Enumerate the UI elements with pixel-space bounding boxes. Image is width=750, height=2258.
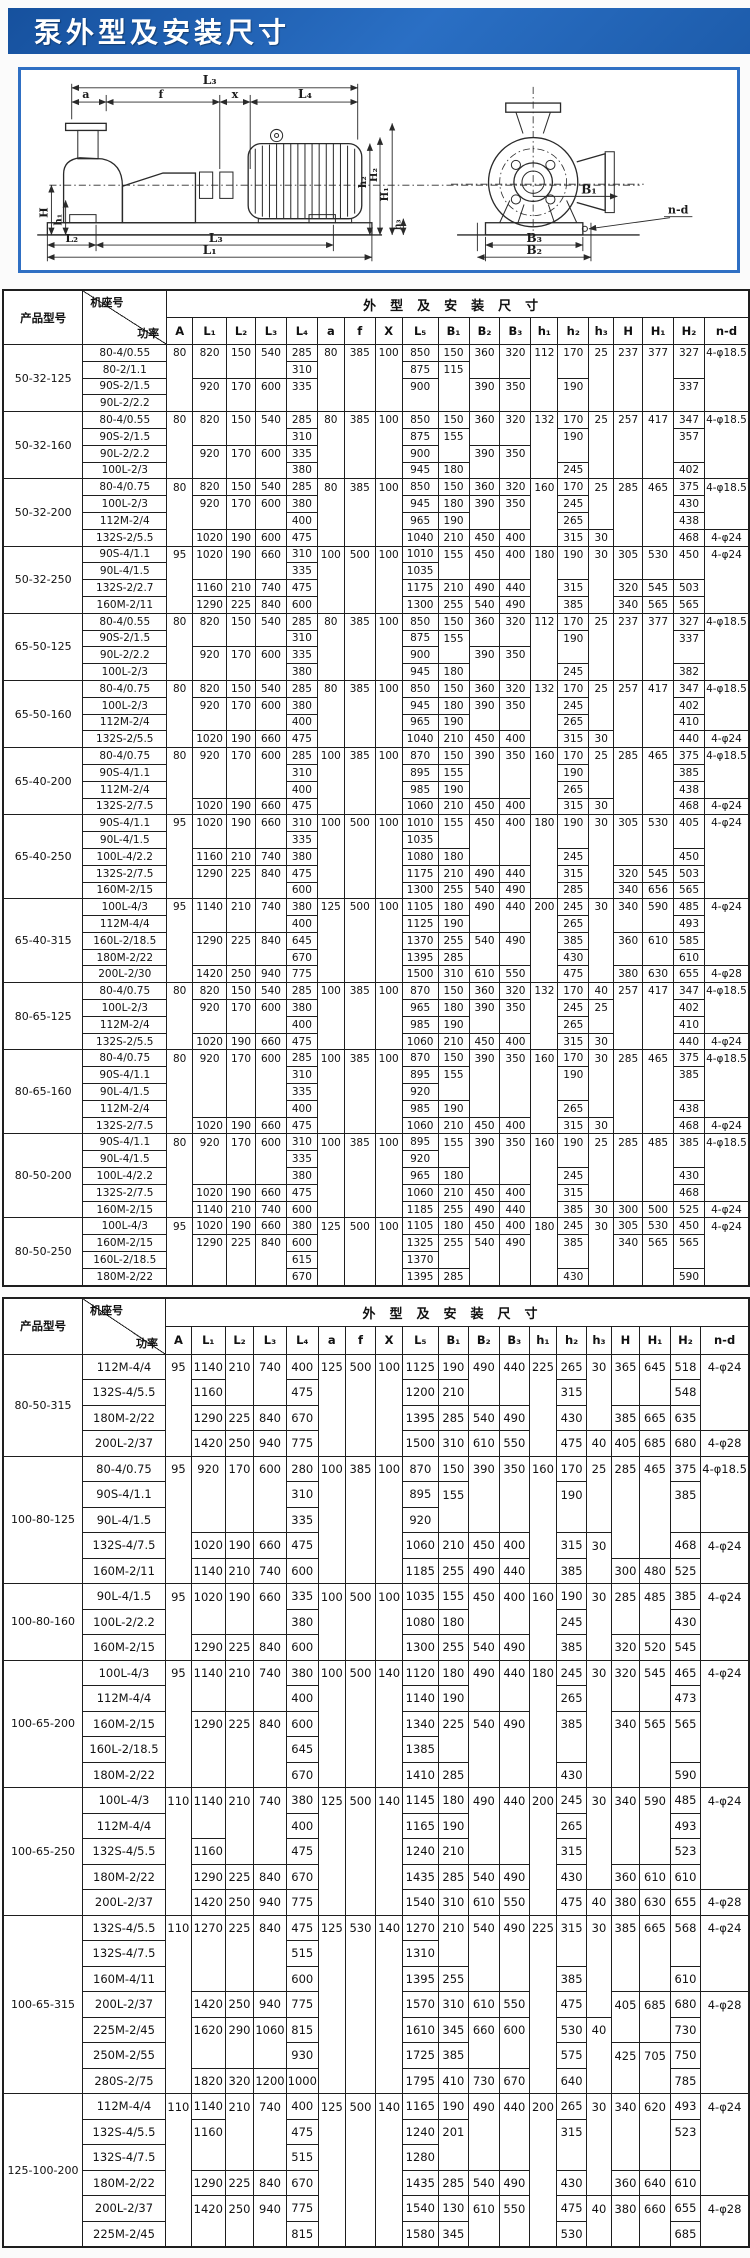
dimension-cell: 4-φ24 <box>701 1915 749 1941</box>
dimension-cell <box>643 1033 674 1050</box>
dimension-cell: 820 <box>193 412 227 429</box>
dimension-cell: 190 <box>556 1482 586 1508</box>
dimension-cell <box>193 1151 227 1168</box>
table-row: 50-32-12580-4/0.558082015054028580385100… <box>3 345 749 362</box>
table-row: 180M-2/226701395285430610 <box>3 949 749 966</box>
dimension-cell <box>344 697 375 714</box>
dimension-cell <box>589 596 614 613</box>
dimension-cell <box>674 395 705 412</box>
dimension-cell <box>469 764 500 781</box>
dimension-cell: 565 <box>643 596 674 613</box>
dimension-cell: 500 <box>344 899 375 916</box>
dimension-cell <box>318 2068 345 2094</box>
dimension-cell <box>674 647 705 664</box>
dimension-cell <box>254 1966 286 1992</box>
dimension-cell <box>227 882 256 899</box>
dimension-cell: 385 <box>674 1134 705 1151</box>
column-header: L₄ <box>286 1326 318 1354</box>
dimension-cell: 400 <box>499 1533 529 1559</box>
dimension-cell <box>587 2170 611 2196</box>
frame-power-cell: 200L-2/37 <box>83 1890 166 1916</box>
dimension-cell <box>701 1864 749 1890</box>
dimension-cell <box>587 2145 611 2171</box>
dim-label-f: f <box>159 88 165 101</box>
dimension-cell: 180 <box>438 496 469 513</box>
dimension-cell <box>704 580 749 597</box>
dimension-cell <box>376 1992 403 2018</box>
dimension-cell: 500 <box>344 546 375 563</box>
dimension-cell <box>165 1609 191 1635</box>
dimension-cell <box>614 428 643 445</box>
dimension-cell <box>500 916 531 933</box>
table-row: 80-65-16080-4/0.758092017060028510038510… <box>3 1050 749 1067</box>
dimension-cell <box>531 1117 558 1134</box>
dimension-cell <box>614 949 643 966</box>
dimension-cell <box>227 1168 256 1185</box>
dimension-cell <box>376 1890 403 1916</box>
dimension-cell: 30 <box>589 1218 614 1235</box>
dimension-cell <box>254 1839 286 1865</box>
dimension-cell <box>193 1252 227 1269</box>
dimension-cell: 4-φ18.5 <box>704 613 749 630</box>
dimension-cell: 210 <box>438 580 469 597</box>
dimension-cell <box>704 428 749 445</box>
dimension-cell: 655 <box>670 2196 700 2222</box>
dimension-cell: 540 <box>256 412 287 429</box>
dimension-cell: 1620 <box>191 2017 225 2043</box>
dimension-cell: 1290 <box>191 1711 225 1737</box>
dimension-cell: 290 <box>225 2017 254 2043</box>
dimension-cell: 670 <box>286 2170 318 2196</box>
dimension-cell: 1020 <box>193 546 227 563</box>
dimension-cell: 1395 <box>402 1966 438 1992</box>
dimension-cell <box>469 1084 500 1101</box>
dimension-cell: 190 <box>225 1533 254 1559</box>
dimension-cell: 255 <box>438 1201 469 1218</box>
dimension-cell <box>254 1762 286 1788</box>
dimension-cell <box>345 1839 375 1865</box>
frame-power-cell: 200L-2/37 <box>83 2196 166 2222</box>
dimension-cell: 475 <box>286 731 317 748</box>
dimension-cell: 155 <box>438 1134 469 1151</box>
dimension-cell <box>614 647 643 664</box>
table-row: 100L-4/2.211602107403801080180245450 <box>3 848 749 865</box>
dimension-cell <box>643 848 674 865</box>
dimension-cell: 1040 <box>402 529 438 546</box>
dimension-cell <box>193 764 227 781</box>
table-row: 132S-4/5.511604751240210315523 <box>3 1839 749 1865</box>
dimension-cell: 4-φ18.5 <box>704 1050 749 1067</box>
dimension-cell <box>256 1151 287 1168</box>
dimension-cell: 410 <box>438 2068 468 2094</box>
frame-power-cell: 90L-4/1.5 <box>83 1584 166 1610</box>
dimension-cell: 40 <box>587 1890 611 1916</box>
dimension-cell: 132 <box>531 680 558 697</box>
dimension-cell: 565 <box>670 1711 700 1737</box>
dim-label-h3: h₃ <box>392 219 403 230</box>
dimension-cell: 493 <box>670 2094 700 2120</box>
dimension-cell: 450 <box>674 848 705 865</box>
dimension-cell <box>438 378 469 395</box>
dimension-cell <box>469 1380 499 1406</box>
dimension-cell: 385 <box>556 1966 586 1992</box>
dimension-cell: 430 <box>556 1864 586 1890</box>
dimension-cell: 540 <box>469 1405 499 1431</box>
dimension-cell: 4-φ18.5 <box>704 680 749 697</box>
dimension-cell: 450 <box>469 1184 500 1201</box>
dimension-cell <box>589 697 614 714</box>
product-model-cell: 100-65-250 <box>3 1788 83 1916</box>
frame-power-cell: 112M-4/4 <box>83 1813 166 1839</box>
dimension-cell <box>317 1033 344 1050</box>
dimension-cell <box>344 1184 375 1201</box>
dimension-cell: 400 <box>286 1686 318 1712</box>
frame-power-cell: 112M-4/4 <box>83 916 167 933</box>
dimension-cell: 565 <box>643 1235 674 1252</box>
table-row: 90S-2/1.5310875155190357 <box>3 428 749 445</box>
dimension-cell: 1340 <box>402 1711 438 1737</box>
dimension-cell: 500 <box>345 1584 375 1610</box>
frame-power-cell: 80-4/0.55 <box>83 345 167 362</box>
frame-power-cell: 80-2/1.1 <box>83 361 167 378</box>
frame-power-cell: 90S-2/1.5 <box>83 378 167 395</box>
dimension-cell: 920 <box>193 378 227 395</box>
dimension-cell: 400 <box>286 2094 318 2120</box>
dimension-cell: 670 <box>286 1762 318 1788</box>
dimension-cell: 610 <box>469 1431 499 1457</box>
dimension-cell <box>704 462 749 479</box>
dimension-cell: 530 <box>643 1218 674 1235</box>
dimension-cell <box>167 596 193 613</box>
dimension-cell <box>531 865 558 882</box>
dimension-cell <box>167 1168 193 1185</box>
dimension-cell <box>704 647 749 664</box>
dimension-cell <box>587 2119 611 2145</box>
dimension-cell <box>643 529 674 546</box>
dimension-cell: 900 <box>402 647 438 664</box>
dimension-cell: 548 <box>670 1380 700 1406</box>
dimension-cell: 385 <box>344 680 375 697</box>
dimension-cell <box>318 2043 345 2069</box>
dimension-cell <box>167 529 193 546</box>
dimension-cell: 1000 <box>286 2068 318 2094</box>
dimension-cell <box>469 1168 500 1185</box>
dimension-cell <box>587 1405 611 1431</box>
dimension-cell: 340 <box>614 596 643 613</box>
dimension-cell: 80 <box>167 680 193 697</box>
dimension-cell: 493 <box>670 1813 700 1839</box>
frame-power-cell: 180M-2/22 <box>83 949 167 966</box>
dimension-cell: 610 <box>469 1992 499 2018</box>
dimension-cell <box>499 1507 529 1533</box>
dimension-cell <box>589 832 614 849</box>
dimension-cell <box>704 916 749 933</box>
dimension-cell: 285 <box>286 412 317 429</box>
dimension-cell <box>317 462 344 479</box>
dimension-cell <box>225 1737 254 1763</box>
model-group: 125-100-200112M-4/4110114021074040012550… <box>3 2094 749 2248</box>
dimension-cell: 390 <box>469 1134 500 1151</box>
dimension-cell <box>704 361 749 378</box>
dimension-cell <box>530 1813 557 1839</box>
dimension-cell <box>318 1558 345 1584</box>
dimension-cell <box>167 1235 193 1252</box>
dimension-cell: 225 <box>530 1915 557 1941</box>
dimension-cell <box>167 865 193 882</box>
dimension-cell: 190 <box>438 2094 468 2120</box>
dimension-cell: 590 <box>640 1788 670 1814</box>
dimension-cell <box>376 2119 403 2145</box>
dimension-cell: 600 <box>256 496 287 513</box>
dimension-cell: 160 <box>531 1050 558 1067</box>
dimension-cell: 920 <box>193 1134 227 1151</box>
dimension-cell <box>704 1100 749 1117</box>
frame-power-cell: 100L-4/3 <box>83 1218 167 1235</box>
dimension-cell <box>256 916 287 933</box>
dimension-cell: 520 <box>640 1635 670 1661</box>
dimension-cell: 210 <box>438 798 469 815</box>
model-group: 65-40-25090S-4/1.19510201906603101005001… <box>3 815 749 899</box>
dimension-cell: 100 <box>317 1134 344 1151</box>
dimension-cell: 100 <box>375 748 402 765</box>
table-row: 100L-2/3920170600380945180390350245402 <box>3 697 749 714</box>
dimension-cell: 385 <box>438 2043 468 2069</box>
dimension-cell: 540 <box>256 680 287 697</box>
dimension-cell: 335 <box>286 378 317 395</box>
dimension-cell: 190 <box>227 731 256 748</box>
dimension-cell: 1500 <box>402 966 438 983</box>
dimension-cell: 155 <box>438 1584 468 1610</box>
dimension-cell: 190 <box>227 815 256 832</box>
dimension-cell <box>500 1268 531 1285</box>
dimension-cell: 1140 <box>191 1354 225 1380</box>
dimension-cell <box>225 1762 254 1788</box>
dimension-cell <box>589 781 614 798</box>
dimension-cell <box>345 1635 375 1661</box>
dimension-cell: 590 <box>670 1762 700 1788</box>
dimension-cell: 360 <box>469 613 500 630</box>
dimension-cell <box>165 1839 191 1865</box>
dimension-cell: 585 <box>674 932 705 949</box>
table-row: 50-32-20080-4/0.758082015054028580385100… <box>3 479 749 496</box>
column-header: H₁ <box>640 1326 670 1354</box>
dimension-cell: 4-φ28 <box>701 1431 749 1457</box>
dimension-cell: 4-φ24 <box>701 1533 749 1559</box>
dimension-cell <box>345 1482 375 1508</box>
dimension-cell <box>611 1380 640 1406</box>
dimension-cell: 1385 <box>402 1737 438 1763</box>
column-header: H <box>611 1326 640 1354</box>
dimension-cell <box>376 1864 403 1890</box>
dimension-cell <box>530 1686 557 1712</box>
dimension-cell: 417 <box>643 983 674 1000</box>
dimension-cell <box>317 1168 344 1185</box>
dimension-cell <box>317 832 344 849</box>
dimension-cell: 320 <box>225 2068 254 2094</box>
dimension-cell: 490 <box>500 1235 531 1252</box>
dimension-cell <box>376 1405 403 1431</box>
dimension-cell <box>167 361 193 378</box>
dimension-cell <box>345 2170 375 2196</box>
dimension-cell: 740 <box>254 1354 286 1380</box>
dimension-cell <box>317 1151 344 1168</box>
dimension-cell <box>530 2043 557 2069</box>
dimension-cell <box>704 932 749 949</box>
dimension-cell <box>643 1184 674 1201</box>
dimension-cell <box>193 1100 227 1117</box>
frame-power-cell: 90S-2/1.5 <box>83 428 167 445</box>
dimension-cell <box>165 1686 191 1712</box>
dimension-cell: 170 <box>227 496 256 513</box>
dimension-cell: 945 <box>402 664 438 681</box>
frame-power-cell: 90S-4/1.1 <box>83 546 167 563</box>
dimension-cell: 80 <box>167 983 193 1000</box>
dimension-cell: 180 <box>531 1218 558 1235</box>
dimension-cell: 390 <box>469 697 500 714</box>
dimension-cell <box>375 1201 402 1218</box>
dimension-cell: 660 <box>256 798 287 815</box>
dimension-cell: 245 <box>558 496 589 513</box>
dimension-cell <box>317 361 344 378</box>
dimension-cell: 337 <box>674 378 705 395</box>
dimension-cell: 1140 <box>191 1660 225 1686</box>
column-header: a <box>317 318 344 345</box>
dimension-cell: 30 <box>589 731 614 748</box>
dimension-cell: 402 <box>674 462 705 479</box>
dimension-cell: 4-φ28 <box>704 966 749 983</box>
frame-power-cell: 90S-4/1.1 <box>83 764 167 781</box>
dimension-cell: 225 <box>438 1711 468 1737</box>
dimension-cell: 4-φ18.5 <box>704 345 749 362</box>
dimension-cell <box>375 865 402 882</box>
dimension-cell: 245 <box>556 1660 586 1686</box>
dimension-cell: 245 <box>556 1609 586 1635</box>
table-row: 80-50-20090S-4/1.18092017060031010038510… <box>3 1134 749 1151</box>
dimension-cell <box>643 664 674 681</box>
product-model-cell: 65-40-250 <box>3 815 83 899</box>
dimension-cell <box>704 1084 749 1101</box>
table-row: 90L-4/1.5335920 <box>3 1151 749 1168</box>
dimension-cell: 125 <box>318 1915 345 1941</box>
column-header: h₃ <box>587 1326 611 1354</box>
dimension-cell: 895 <box>402 764 438 781</box>
dimension-cell <box>530 1482 557 1508</box>
dimension-cell <box>167 798 193 815</box>
dimension-cell: 600 <box>286 1711 318 1737</box>
dimension-cell <box>531 1151 558 1168</box>
dimension-cell: 920 <box>193 1050 227 1067</box>
dimension-cell <box>345 1711 375 1737</box>
dimension-cell: 940 <box>254 1431 286 1457</box>
dimension-cell: 350 <box>500 445 531 462</box>
frame-power-cell: 90L-2/2.2 <box>83 395 167 412</box>
table-row: 200L-2/371420250940775157031061055047540… <box>3 1992 749 2018</box>
dimension-cell: 600 <box>286 1966 318 1992</box>
frame-power-cell: 132S-4/5.5 <box>83 1380 166 1406</box>
dimension-cell: 475 <box>286 1839 318 1865</box>
dimension-cell: 630 <box>640 1890 670 1916</box>
dimension-cell <box>640 1380 670 1406</box>
frame-power-cell: 100L-2/3 <box>83 462 167 479</box>
dimension-cell: 400 <box>286 1100 317 1117</box>
frame-power-cell: 132S-4/5.5 <box>83 1839 166 1865</box>
dimension-cell <box>611 2017 640 2043</box>
dimension-cell: 965 <box>402 1168 438 1185</box>
dimension-cell: 170 <box>558 613 589 630</box>
column-header: H <box>614 318 643 345</box>
column-header: A <box>167 318 193 345</box>
dimension-cell <box>193 664 227 681</box>
dimension-cell <box>317 647 344 664</box>
dimension-cell <box>701 2017 749 2043</box>
dimension-cell: 1105 <box>402 1218 438 1235</box>
dimension-cell: 840 <box>256 1235 287 1252</box>
dimension-cell: 190 <box>227 546 256 563</box>
dimension-cell: 315 <box>558 798 589 815</box>
dimension-cell: 485 <box>674 899 705 916</box>
frame-power-cell: 200L-2/37 <box>83 1992 166 2018</box>
dimension-cell <box>530 1507 557 1533</box>
dimension-cell <box>500 462 531 479</box>
dimension-cell: 210 <box>438 1033 469 1050</box>
dimension-cell <box>614 664 643 681</box>
dimension-cell <box>531 462 558 479</box>
dimension-cell <box>530 2145 557 2171</box>
table-row: 100-65-250100L-4/31101140210740380125500… <box>3 1788 749 1814</box>
dimension-cell: 565 <box>674 882 705 899</box>
dimension-cell <box>500 1016 531 1033</box>
dimension-cell: 335 <box>286 647 317 664</box>
dimension-cell <box>558 1252 589 1269</box>
dimension-cell <box>256 428 287 445</box>
dimension-cell: 4-φ28 <box>701 1890 749 1916</box>
product-model-cell: 80-65-160 <box>3 1050 83 1134</box>
frame-power-cell: 160M-2/11 <box>83 1558 166 1584</box>
dimension-cell: 95 <box>167 546 193 563</box>
dimension-cell: 4-φ24 <box>701 1354 749 1380</box>
dimension-cell: 920 <box>191 1456 225 1482</box>
dimension-cell <box>640 2119 670 2145</box>
dimension-cell: 450 <box>674 1218 705 1235</box>
table-row: 180M-2/226701410285430590 <box>3 1762 749 1788</box>
dimension-cell: 405 <box>674 815 705 832</box>
dimension-cell: 503 <box>674 865 705 882</box>
dimension-cell: 245 <box>558 462 589 479</box>
dimension-cell: 518 <box>670 1354 700 1380</box>
dimension-cell <box>611 1941 640 1967</box>
dimension-cell: 1420 <box>191 2196 225 2222</box>
dimension-cell <box>376 2221 403 2247</box>
dimension-cell <box>225 2043 254 2069</box>
dimension-cell: 465 <box>640 1456 670 1482</box>
dimension-table-section-1: 产品型号机座号功率外型及安装尺寸AL₁L₂L₃L₄afXL₅B₁B₂B₃h₁h₂… <box>0 289 750 1287</box>
dimension-cell: 840 <box>254 1405 286 1431</box>
dimension-cell: 100 <box>375 546 402 563</box>
pump-side-view: L₃ a f x L₄ H h₁ h₂ H₂ H₁ h₃ L₂ L₃ L₁ <box>37 73 639 261</box>
table-row: 100L-2/3380945180245382 <box>3 664 749 681</box>
dimension-cell <box>317 529 344 546</box>
dimension-cell <box>704 596 749 613</box>
dimension-cell <box>317 496 344 513</box>
dimension-cell <box>614 697 643 714</box>
dimension-cell <box>375 1067 402 1084</box>
table-row: 100-65-315132S-4/5.511012702258404751255… <box>3 1915 749 1941</box>
dimension-cell <box>317 1184 344 1201</box>
dimension-cell: 1020 <box>193 1117 227 1134</box>
dimension-cell <box>317 378 344 395</box>
dimension-cell: 390 <box>469 1000 500 1017</box>
dimension-cell: 1725 <box>402 2043 438 2069</box>
